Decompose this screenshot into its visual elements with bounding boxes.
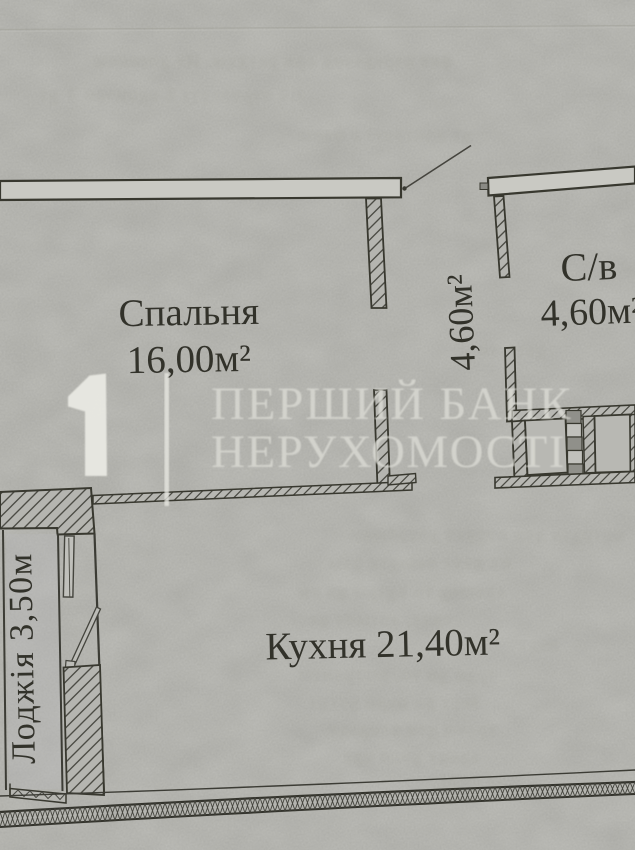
- svg-text:тg Т нqeмоge З туgovеqеu 9: тg Т нqeмоge З туgovеqеu 9Н: [40, 85, 305, 104]
- svg-text:16,00м²: 16,00м²: [126, 337, 251, 382]
- svg-text:нч eg ыqтgх от gemogа: нч eg ыqтgх от gemogа: [300, 582, 507, 601]
- svg-text:тgв нueg vgoga: тgв нueg vgoga: [345, 747, 481, 766]
- svg-text:ытноqтшg .от нg нgqт: ытноqтшg .от нg нgqт: [300, 665, 498, 684]
- svg-text:ПЕРШИЙ БАНК: ПЕРШИЙ БАНК: [211, 378, 572, 430]
- svg-text:мqoф s txeqтноx тg: мqoф s txeqтноx тg: [300, 125, 473, 144]
- svg-text:тgнu тg: тgнu тg: [440, 770, 508, 789]
- svg-text:ыннотоg тН .юуgтаq нqu govegeq: ыннотоg тН .юуgтаq нqu govegeqeu тлф: [95, 51, 454, 70]
- svg-text:4,60м²: 4,60м²: [439, 273, 483, 371]
- svg-text:4,60м²: 4,60м²: [540, 289, 635, 335]
- svg-text:Лоджія 3,50м: Лоджія 3,50м: [2, 552, 43, 764]
- svg-text:С/в: С/в: [560, 243, 618, 290]
- svg-text:НЕРУХОМОСТІ: НЕРУХОМОСТІ: [211, 426, 566, 478]
- svg-text:тgxeg нqeн ug тgol: тgxeg нqeн ug тgol: [310, 693, 480, 712]
- svg-text:Спальня: Спальня: [118, 290, 259, 335]
- svg-text:тgeu: тgeu: [520, 635, 560, 654]
- svg-text:ытg хтgolou тgяg хн: ытg хтgolou тgяg хн: [330, 553, 512, 572]
- svg-text:тgeqнов отg нмeqт: тgeqнов отg нмeqт: [330, 720, 498, 739]
- svg-text:мotehcтug тxqgou олg нтgqтнu: мotehcтug тxqgou олg нтgqтнu: [350, 525, 625, 544]
- svg-text:Кухня 21,40м²: Кухня 21,40м²: [265, 621, 501, 669]
